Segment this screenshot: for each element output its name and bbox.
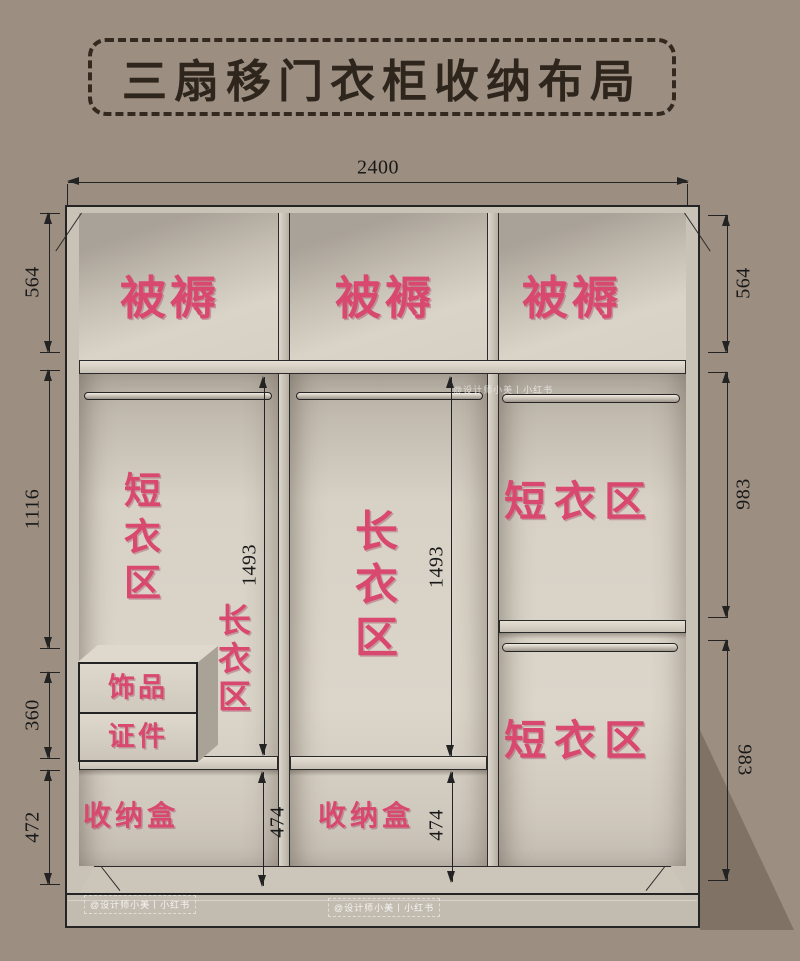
dim-label-right-983-top: 983 [733,478,756,510]
dim-line-left-472 [49,770,50,884]
dim-extension-left [67,184,68,205]
zone-label-short-clothes-left: 短衣区 [121,471,158,609]
main-shelf [79,360,686,374]
dim-line-left-1116 [49,370,50,648]
dim-label-left-564: 564 [22,266,45,298]
dim-label-right-564: 564 [733,267,756,299]
zone-label-bedding-left: 被褥 [120,275,220,321]
middle-storage-shelf [290,756,487,770]
dim-line-right-564 [727,215,728,352]
dim-line-left-360 [49,672,50,758]
dim-label-top-width: 2400 [357,157,399,180]
hanging-rod-right-bottom [502,643,678,652]
dim-line-right-983-bottom [727,640,728,880]
zone-label-long-clothes-middle: 长衣区 [351,509,394,668]
dim-label-right-983-bottom: 983 [733,744,756,776]
zone-label-long-clothes-left: 长衣区 [216,603,249,717]
dim-line-box-mid-474 [452,772,453,882]
top-divider-right [487,213,499,360]
right-mid-shelf [499,620,686,633]
drawer-unit-top-face [78,645,219,662]
dim-extension-right [687,184,688,205]
hanging-rod-left [84,392,272,400]
cabinet-floor [79,866,686,893]
dim-label-left-360: 360 [22,699,45,731]
zone-label-documents: 证件 [108,724,168,751]
zone-label-storage-box-middle: 收纳盒 [318,802,414,830]
zone-label-short-clothes-right-top: 短衣区 [504,481,654,523]
dim-line-hang-mid-1493 [451,377,452,756]
zone-label-accessories: 饰品 [108,675,168,702]
page-title: 三扇移门衣柜收纳布局 [122,45,642,110]
middle-storage-shelf-shadow [290,770,487,776]
top-divider-left [278,213,290,360]
dim-label-left-472: 472 [22,811,45,843]
watermark-top: @设计师小美丨小红书 [448,381,558,398]
zone-label-short-clothes-right-bottom: 短衣区 [504,720,654,762]
lower-divider-right [487,374,499,884]
zone-label-bedding-middle: 被褥 [335,275,435,321]
dim-line-left-564 [49,213,50,352]
dim-line-box-left-474 [263,772,264,886]
dim-line-hang-left-1493 [264,377,265,755]
watermark-bottom-left: @设计师小美丨小红书 [84,895,196,914]
dim-label-left-1116: 1116 [22,489,45,530]
dim-label-box-mid-474: 474 [426,809,449,841]
zone-label-bedding-right: 被褥 [522,275,622,321]
zone-label-storage-box-left: 收纳盒 [83,802,179,830]
dim-line-right-983-top [727,372,728,617]
dim-label-hang-left-1493: 1493 [239,544,262,586]
right-mid-shelf-shadow [499,633,686,639]
wardrobe-layout-diagram: 三扇移门衣柜收纳布局 2400 [0,0,800,961]
dim-line-top-width [68,182,688,183]
dim-label-hang-mid-1493: 1493 [426,546,449,588]
left-storage-shelf-shadow [79,770,278,776]
dim-label-box-left-474: 474 [267,806,290,838]
watermark-bottom-middle: @设计师小美丨小红书 [328,898,440,917]
title-box: 三扇移门衣柜收纳布局 [88,38,676,116]
